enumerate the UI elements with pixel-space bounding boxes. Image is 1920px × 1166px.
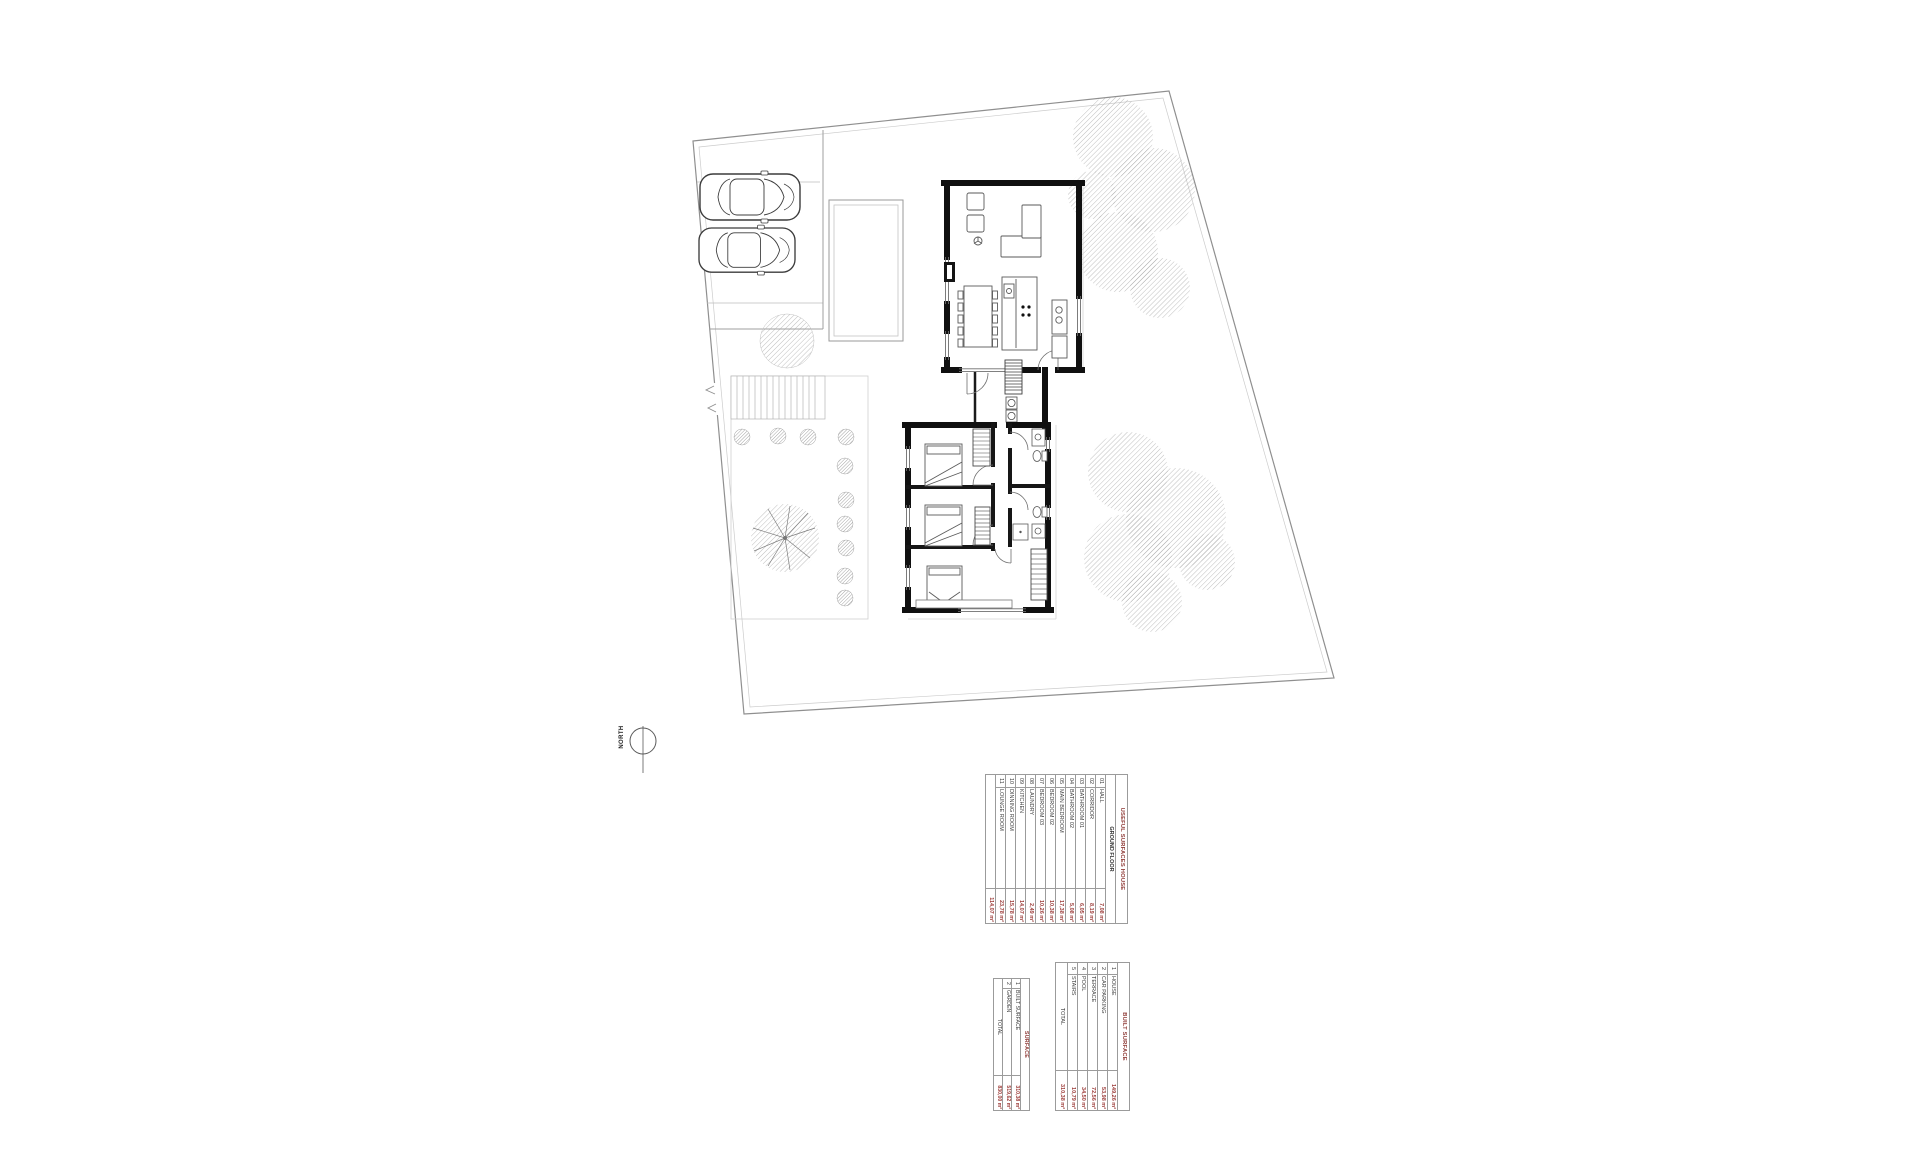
cell-value: 7,08 m²: [1096, 889, 1106, 924]
car-1: [700, 171, 800, 223]
cell-value: 34,50 m²: [1078, 1071, 1088, 1111]
cell-value: 10,79 m²: [1068, 1071, 1078, 1111]
table-row: 1BUILT SURFACE310,38 m²: [1012, 979, 1021, 1111]
cell-num: 1: [1108, 963, 1118, 975]
useful-surfaces-subtitle: GROUND FLOOR: [1106, 775, 1116, 924]
cell-name: POOL: [1078, 975, 1088, 1071]
cell-name: BEDROOM 02: [1046, 788, 1056, 889]
total-value: 310,38 m²: [1056, 1071, 1068, 1111]
total-label: [986, 775, 996, 889]
cell-value: 17,38 m²: [1056, 889, 1066, 924]
cell-name: GARDEN: [1003, 989, 1012, 1076]
cell-value: 149,26 m²: [1108, 1071, 1118, 1111]
table-row: 03BATHROOM 016,05 m²: [1076, 775, 1086, 924]
kitchen-counter: [1052, 300, 1067, 358]
bedroom-bench: [916, 600, 1012, 608]
cell-name: TERRACE: [1088, 975, 1098, 1071]
cell-value: 23,78 m²: [996, 889, 1006, 924]
total-row: 114,07 m²: [986, 775, 996, 924]
table-row: 04BATHROOM 025,08 m²: [1066, 775, 1076, 924]
cell-num: 04: [1066, 775, 1076, 788]
cell-num: 05: [1056, 775, 1066, 788]
table-row: 3TERRACE72,56 m²: [1088, 963, 1098, 1111]
tree-small-left: [760, 314, 814, 368]
cell-value: 10,38 m²: [1046, 889, 1056, 924]
exterior-stairs: [1005, 360, 1022, 394]
table-row: 10DINNING ROOM15,78 m²: [1006, 775, 1016, 924]
cell-name: KITCHEN: [1016, 788, 1026, 889]
total-label: TOTAL: [1056, 963, 1068, 1071]
table-row: 09KITCHEN14,07 m²: [1016, 775, 1026, 924]
cell-name: BEDROOM 03: [1036, 788, 1046, 889]
cell-num: 5: [1068, 963, 1078, 975]
cell-value: 2,49 m²: [1026, 889, 1036, 924]
total-value: 114,07 m²: [986, 889, 996, 924]
table-row: 1HOUSE149,26 m²: [1108, 963, 1118, 1111]
entrance-gate: [706, 383, 718, 415]
total-row: TOTAL 830,00 m²: [994, 979, 1003, 1111]
cell-num: 2: [1098, 963, 1108, 975]
dining-table: [958, 286, 998, 347]
cell-name: HALL: [1096, 788, 1106, 889]
table-row: 01HALL7,08 m²: [1096, 775, 1106, 924]
pool: [829, 200, 903, 341]
table-row: 2GARDEN519,62 m²: [1003, 979, 1012, 1111]
table-row: 02CORRIDOR8,19 m²: [1086, 775, 1096, 924]
built-surface-title: BUILT SURFACE: [1118, 963, 1130, 1111]
cell-value: 8,19 m²: [1086, 889, 1096, 924]
cell-name: CORRIDOR: [1086, 788, 1096, 889]
cell-value: 519,62 m²: [1003, 1076, 1012, 1111]
fireplace: [944, 262, 955, 282]
table-row: 5STAIRS10,79 m²: [1068, 963, 1078, 1111]
total-row: TOTAL 310,38 m²: [1056, 963, 1068, 1111]
cell-name: DINNING ROOM: [1006, 788, 1016, 889]
table-row: 11LOUNGE ROOM23,78 m²: [996, 775, 1006, 924]
table-row: 2CAR PARKING53,98 m²: [1098, 963, 1108, 1111]
cell-name: HOUSE: [1108, 975, 1118, 1071]
cell-name: BUILT SURFACE: [1012, 989, 1021, 1076]
cell-num: 08: [1026, 775, 1036, 788]
cell-name: LOUNGE ROOM: [996, 788, 1006, 889]
total-label: TOTAL: [994, 979, 1003, 1076]
cell-num: 01: [1096, 775, 1106, 788]
cell-num: 09: [1016, 775, 1026, 788]
north-label: NORTH: [619, 714, 625, 760]
cell-name: LAUNDRY: [1026, 788, 1036, 889]
cell-name: MAIN BEDROOM: [1056, 788, 1066, 889]
cell-value: 72,56 m²: [1088, 1071, 1098, 1111]
beds: [925, 444, 962, 603]
cell-num: 03: [1076, 775, 1086, 788]
entrance-steps: [731, 376, 825, 419]
table-row: 08LAUNDRY2,49 m²: [1026, 775, 1036, 924]
built-surface-table: BUILT SURFACE 1HOUSE149,26 m²2CAR PARKIN…: [1055, 962, 1130, 1111]
cell-num: 10: [1006, 775, 1016, 788]
cell-name: CAR PARKING: [1098, 975, 1108, 1071]
surface-table: SURFACE 1BUILT SURFACE310,38 m²2GARDEN51…: [993, 978, 1030, 1111]
cell-num: 1: [1012, 979, 1021, 989]
floor-plan-canvas: NORTH USEFUL SURFACES HOUSE GROUND FLOOR…: [0, 0, 1920, 1166]
cell-num: 06: [1046, 775, 1056, 788]
cell-value: 6,05 m²: [1076, 889, 1086, 924]
cell-value: 310,38 m²: [1012, 1076, 1021, 1111]
cell-value: 10,26 m²: [1036, 889, 1046, 924]
cell-name: STAIRS: [1068, 975, 1078, 1071]
cell-value: 5,08 m²: [1066, 889, 1076, 924]
cell-value: 14,07 m²: [1016, 889, 1026, 924]
cell-name: BATHROOM 02: [1066, 788, 1076, 889]
car-2: [699, 225, 795, 275]
useful-surfaces-title: USEFUL SURFACES HOUSE: [1116, 775, 1128, 924]
table-row: 07BEDROOM 0310,26 m²: [1036, 775, 1046, 924]
total-value: 830,00 m²: [994, 1076, 1003, 1111]
table-row: 06BEDROOM 0210,38 m²: [1046, 775, 1056, 924]
table-row: 4POOL34,50 m²: [1078, 963, 1088, 1111]
cell-num: 02: [1086, 775, 1096, 788]
cell-num: 11: [996, 775, 1006, 788]
cell-value: 53,98 m²: [1098, 1071, 1108, 1111]
useful-surfaces-table: USEFUL SURFACES HOUSE GROUND FLOOR 01HAL…: [985, 774, 1128, 924]
cell-value: 15,78 m²: [1006, 889, 1016, 924]
cell-num: 07: [1036, 775, 1046, 788]
north-arrow: [630, 726, 656, 773]
tree-branched: [751, 504, 819, 572]
cell-num: 2: [1003, 979, 1012, 989]
table-row: 05MAIN BEDROOM17,38 m²: [1056, 775, 1066, 924]
surface-title: SURFACE: [1021, 979, 1030, 1111]
cell-num: 4: [1078, 963, 1088, 975]
site-plan-drawing: [0, 0, 1920, 1166]
kitchen-island: [1002, 277, 1037, 350]
cell-num: 3: [1088, 963, 1098, 975]
cell-name: BATHROOM 01: [1076, 788, 1086, 889]
